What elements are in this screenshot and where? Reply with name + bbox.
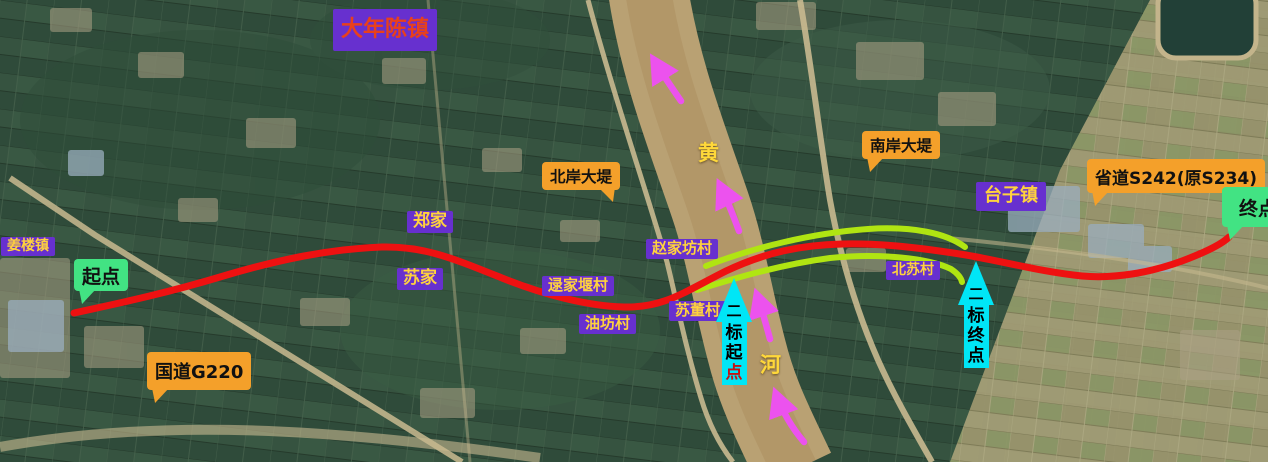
marker-char: 标 — [726, 323, 743, 343]
marker-section2-end: 二 标 终 点 — [958, 261, 994, 368]
river-name-he: 河 — [760, 349, 781, 379]
marker-char: 标 — [968, 306, 985, 326]
marker-text-column: 标 终 点 — [964, 305, 989, 368]
marker-section2-start: 二 标 起 点 — [716, 278, 752, 385]
label-sujia-village: 苏家 — [397, 268, 443, 290]
callout-route-end: 终点 — [1222, 187, 1268, 227]
marker-char: 点 — [968, 346, 985, 366]
marker-char: 终 — [968, 326, 985, 346]
marker-char: 点 — [726, 363, 743, 383]
flow-arrow-icon — [720, 185, 739, 231]
label-youfang-village: 油坊村 — [579, 314, 636, 334]
route-end-text: 终点 — [1239, 194, 1268, 221]
callout-south-dike: 南岸大堤 — [862, 131, 940, 159]
callout-s242-text: 省道S242(原S234) — [1095, 164, 1257, 189]
map-canvas: 大年陈镇 姜楼镇 郑家 苏家 逯家堰村 油坊村 赵家坊村 苏董村 北苏村 台子镇… — [0, 0, 1268, 462]
river-name-huang: 黄 — [698, 137, 719, 167]
route-start-text: 起点 — [82, 262, 120, 289]
marker-char: 起 — [726, 343, 743, 363]
up-arrow-icon: 二 — [958, 261, 994, 305]
label-lujiayan-village: 逯家堰村 — [542, 276, 614, 296]
flow-arrow-icon — [776, 394, 804, 442]
flow-arrow-icon — [654, 60, 681, 101]
flow-arrow-icon — [757, 295, 770, 339]
callout-g220-text: 国道G220 — [155, 358, 243, 384]
label-danianchen-town: 大年陈镇 — [333, 9, 437, 51]
label-taizi-town: 台子镇 — [976, 182, 1046, 211]
callout-north-dike-text: 北岸大堤 — [550, 165, 612, 187]
marker-text-column: 标 起 点 — [722, 322, 747, 385]
label-zhaojiafang-village: 赵家坊村 — [646, 239, 718, 259]
marker-char: 二 — [968, 283, 983, 304]
label-zhengjia-village: 郑家 — [407, 211, 453, 233]
marker-char: 二 — [726, 300, 741, 321]
callout-north-dike: 北岸大堤 — [542, 162, 620, 190]
callout-route-start: 起点 — [74, 259, 128, 291]
up-arrow-icon: 二 — [716, 278, 752, 322]
label-jianglou-town: 姜楼镇 — [1, 237, 55, 256]
route-overlay — [0, 0, 1268, 462]
callout-g220-road: 国道G220 — [147, 352, 251, 390]
callout-south-dike-text: 南岸大堤 — [870, 134, 932, 156]
label-beisu-village: 北苏村 — [886, 261, 940, 280]
